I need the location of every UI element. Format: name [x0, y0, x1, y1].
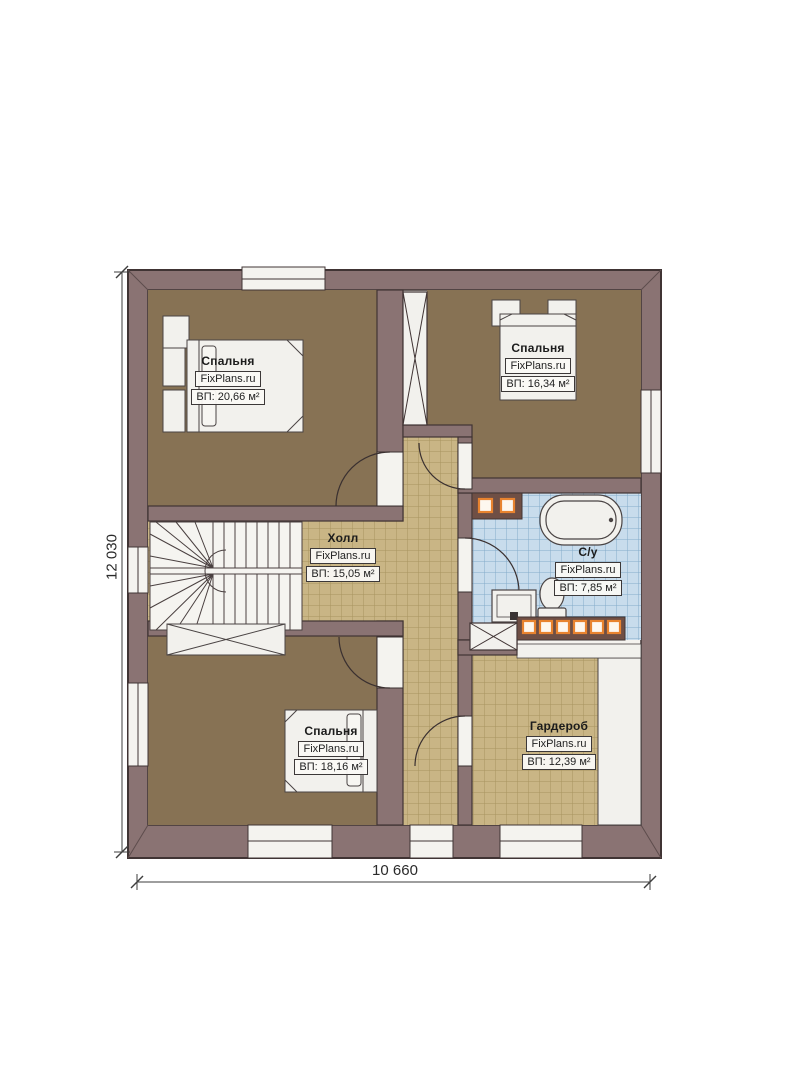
- closet-bottom-left: [167, 624, 285, 655]
- pillow: [202, 346, 216, 382]
- window-top: [242, 267, 325, 290]
- window-bottom-right: [500, 825, 582, 858]
- floor-plan-page: Спальня FixPlans.ru ВП: 20,66 м² Спальня…: [0, 0, 792, 1080]
- window-bottom-middle: [410, 825, 453, 858]
- window-right: [641, 390, 661, 473]
- shelf-band-bottom: [517, 617, 625, 640]
- wardrobe-storage: [598, 658, 641, 825]
- pillow: [347, 752, 361, 786]
- vent-shaft-middle: [470, 623, 517, 650]
- dimension-height-label: 12 030: [104, 534, 121, 580]
- closet: [163, 316, 189, 348]
- pillow: [202, 390, 216, 426]
- pillow: [347, 714, 361, 748]
- bed: [500, 314, 576, 400]
- window-bottom-left: [248, 825, 332, 858]
- window-left-lower: [128, 683, 148, 766]
- furniture-bedroom-top-right: [492, 300, 576, 400]
- nightstand: [163, 348, 185, 386]
- wardrobe-top-strip: [517, 644, 641, 658]
- floor-corridor: [403, 437, 458, 825]
- shelf-band-top: [472, 493, 522, 519]
- toilet: [540, 578, 564, 610]
- vent-shaft-top: [403, 292, 427, 425]
- dimension-width-label: 10 660: [330, 862, 460, 879]
- furniture-bedroom-bottom-left: [285, 710, 377, 792]
- nightstand: [163, 390, 185, 432]
- window-left-upper: [128, 547, 148, 593]
- staircase: [150, 522, 302, 630]
